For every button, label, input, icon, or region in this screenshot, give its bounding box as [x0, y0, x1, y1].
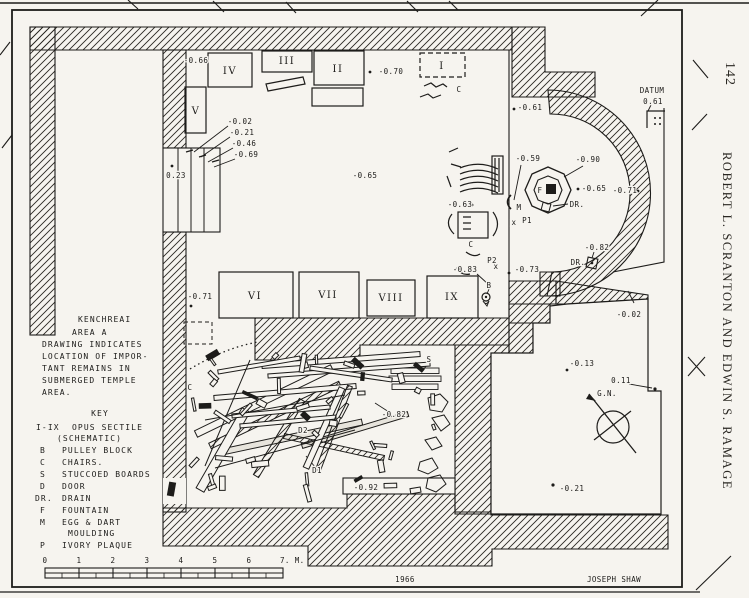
- annotation-29-c: C: [188, 383, 193, 392]
- title-line-2: DRAWING INDICATES: [42, 340, 143, 349]
- rubble-stones: [418, 394, 450, 492]
- key-sym-i-ix: I-IX: [36, 423, 60, 432]
- staircase: [163, 148, 220, 232]
- annotation-3-0-46: -0.46: [232, 139, 257, 148]
- key-desc-drain: DRAIN: [62, 494, 92, 503]
- annotation-6-0-70: -0.70: [379, 67, 404, 76]
- annotation-13-dr: DR.: [570, 200, 585, 209]
- annotation-11-0-90: -0.90: [576, 155, 601, 164]
- title-line-0: KENCHREAI: [78, 315, 131, 324]
- key-sym-b: B: [40, 446, 46, 455]
- annotation-22-x: x: [494, 262, 499, 271]
- scale-tick-5: 5: [213, 556, 218, 565]
- former-wall-dashed: [184, 322, 212, 344]
- key-desc-chairs: CHAIRS.: [62, 458, 103, 467]
- fountain-block: [546, 184, 556, 194]
- annotation-14-0-65: -0.65: [582, 184, 607, 193]
- key-desc-door: DOOR: [62, 482, 86, 491]
- annotation-24-0-73: -0.73: [515, 265, 540, 274]
- annotation-7-c: C: [457, 85, 462, 94]
- wall-wedge-c: [509, 323, 533, 353]
- key-desc-stuccoed-boards: STUCCOED BOARDS: [62, 470, 151, 479]
- key-sym-c: C: [40, 458, 46, 467]
- scanned-page: -0.66-0.02-0.21-0.46-0.690.23-0.70C-0.65…: [0, 0, 749, 598]
- title-line-3: LOCATION OF IMPOR-: [42, 352, 149, 361]
- panel-label-vii: VII: [317, 290, 338, 301]
- scale-tick-0: 0: [43, 556, 48, 565]
- annotation-27-dr: DR.: [571, 258, 586, 267]
- scale-tick-6: 6: [247, 556, 252, 565]
- annotation-33-d1: D1: [312, 466, 322, 475]
- annotation-2-0-21: -0.21: [230, 128, 255, 137]
- plank: [207, 484, 216, 491]
- annotation-37-0-11: 0.11: [611, 376, 631, 385]
- fountain: [525, 167, 571, 213]
- annotation-12-f: F: [538, 186, 543, 195]
- panel-II-sub: [312, 88, 363, 106]
- key-desc-fountain: FOUNTAIN: [62, 506, 109, 515]
- chairs-sketch: [420, 83, 511, 274]
- wall-top: [30, 27, 512, 50]
- pulley-block: [482, 293, 490, 306]
- tilted-board: [266, 77, 305, 91]
- annotation-17-x: x: [512, 218, 517, 227]
- plank: [191, 398, 196, 411]
- title-line-6: AREA.: [42, 388, 72, 397]
- annotation-0-0-66: -0.66: [184, 56, 209, 65]
- key-desc-schematic: (SCHEMATIC): [57, 434, 122, 443]
- annotation-31-0-82: -0.82: [382, 410, 407, 419]
- key-heading: KEY: [91, 409, 109, 418]
- scale-tick-3: 3: [145, 556, 150, 565]
- panel-label-iii: III: [279, 56, 295, 67]
- key-desc-pulley-block: PULLEY BLOCK: [62, 446, 133, 455]
- opus-sectile-panels: [185, 51, 478, 318]
- panel-label-ix: IX: [445, 292, 459, 303]
- annotation-25-b: B: [487, 281, 492, 290]
- annotation-19-0-63: -0.63: [448, 200, 473, 209]
- annotation-34-0-92: -0.92: [354, 483, 379, 492]
- annotation-10-0-59: -0.59: [516, 154, 541, 163]
- site-plan-figure: -0.66-0.02-0.21-0.46-0.690.23-0.70C-0.65…: [0, 0, 749, 598]
- stuccoed-boards: [389, 368, 441, 390]
- key-sym-s: S: [40, 470, 46, 479]
- wall-wedge-b: [509, 304, 550, 323]
- panel-label-v: V: [191, 106, 201, 117]
- page-number: 142: [721, 62, 737, 86]
- panel-label-i: I: [439, 61, 444, 72]
- annotation-43-joseph-shaw: JOSEPH SHAW: [587, 575, 641, 584]
- key-sym-p: P: [40, 541, 46, 550]
- annotation-1-0-02: -0.02: [228, 117, 253, 126]
- plank: [384, 483, 397, 488]
- plank: [361, 373, 365, 381]
- plank: [410, 487, 421, 494]
- plank: [210, 379, 218, 387]
- annotation-23-0-83: -0.83: [453, 265, 478, 274]
- annotation-42-1966: 1966: [395, 575, 415, 584]
- panel-label-vi: VI: [247, 291, 262, 302]
- plank: [215, 456, 232, 462]
- annotation-35-0-02: -0.02: [617, 310, 642, 319]
- plank: [315, 355, 318, 364]
- scale-bar: [45, 568, 283, 578]
- annotation-4-0-69: -0.69: [234, 150, 259, 159]
- annotation-39-0-21: -0.21: [560, 484, 585, 493]
- annotation-20-c: C: [469, 240, 474, 249]
- annotation-15-0-71: -0.71: [613, 186, 638, 195]
- key-desc-egg-dart: EGG & DART: [62, 518, 121, 527]
- plank: [431, 394, 435, 405]
- key-sym-dr: DR.: [35, 494, 53, 503]
- key-desc-ivory-plaque: IVORY PLAQUE: [62, 541, 133, 550]
- annotation-32-d2: D2: [298, 426, 308, 435]
- plank: [374, 443, 387, 447]
- panel-label-ii: II: [333, 64, 344, 75]
- wall-left: [30, 27, 55, 335]
- panel-label-iv: IV: [223, 66, 237, 77]
- wall-top-right-junction: [512, 27, 595, 97]
- key-sym-f: F: [40, 506, 46, 515]
- annotation-36-0-13: -0.13: [570, 359, 595, 368]
- annotation-28-0-71: -0.71: [188, 292, 213, 301]
- wall-inner-lower: [163, 232, 186, 512]
- running-header: ROBERT L. SCRANTON AND EDWIN S. RAMAGE: [719, 152, 734, 490]
- plank: [389, 451, 394, 460]
- plank: [199, 403, 211, 408]
- plank: [329, 420, 337, 427]
- plank: [414, 387, 421, 394]
- scale-tick-4: 4: [179, 556, 184, 565]
- key-desc-moulding: MOULDING: [68, 529, 115, 538]
- panel-label-viii: VIII: [377, 293, 403, 304]
- scale-tick-1: 1: [77, 556, 82, 565]
- plank: [210, 358, 216, 365]
- annotation-8-0-65: -0.65: [353, 171, 378, 180]
- wall-inner-upper: [163, 50, 186, 148]
- plank: [377, 460, 385, 473]
- annotation-30-s: S: [427, 355, 432, 364]
- annotation-16-m: M: [517, 203, 522, 212]
- annotation-9-0-61: -0.61: [518, 103, 543, 112]
- annotation-41-0-61: 0.61: [643, 97, 663, 106]
- key-sym-d: D: [40, 482, 46, 491]
- title-line-1: AREA A: [72, 328, 108, 337]
- scale-tick-end: 7. M.: [280, 556, 305, 565]
- plank: [189, 457, 199, 468]
- plank: [303, 484, 311, 502]
- key-desc-opus-sectile: OPUS SECTILE: [72, 423, 143, 432]
- plank: [358, 391, 366, 395]
- plank: [277, 378, 280, 393]
- annotation-38-g-n: G.N.: [597, 389, 617, 398]
- plank: [432, 424, 436, 430]
- plank: [219, 476, 225, 490]
- annotation-26-0-82: -0.82: [585, 243, 610, 252]
- title-line-4: TANT REMAINS IN: [42, 364, 131, 373]
- title-line-5: SUBMERGED TEMPLE: [42, 376, 137, 385]
- annotation-18-p1: P1: [522, 216, 532, 225]
- scale-tick-2: 2: [111, 556, 116, 565]
- datum-marker: [647, 111, 665, 128]
- field-x-mark: [688, 357, 705, 376]
- annotation-40-datum: DATUM: [640, 86, 665, 95]
- annotation-5-0-23: 0.23: [166, 171, 186, 180]
- key-sym-m: M: [40, 518, 46, 527]
